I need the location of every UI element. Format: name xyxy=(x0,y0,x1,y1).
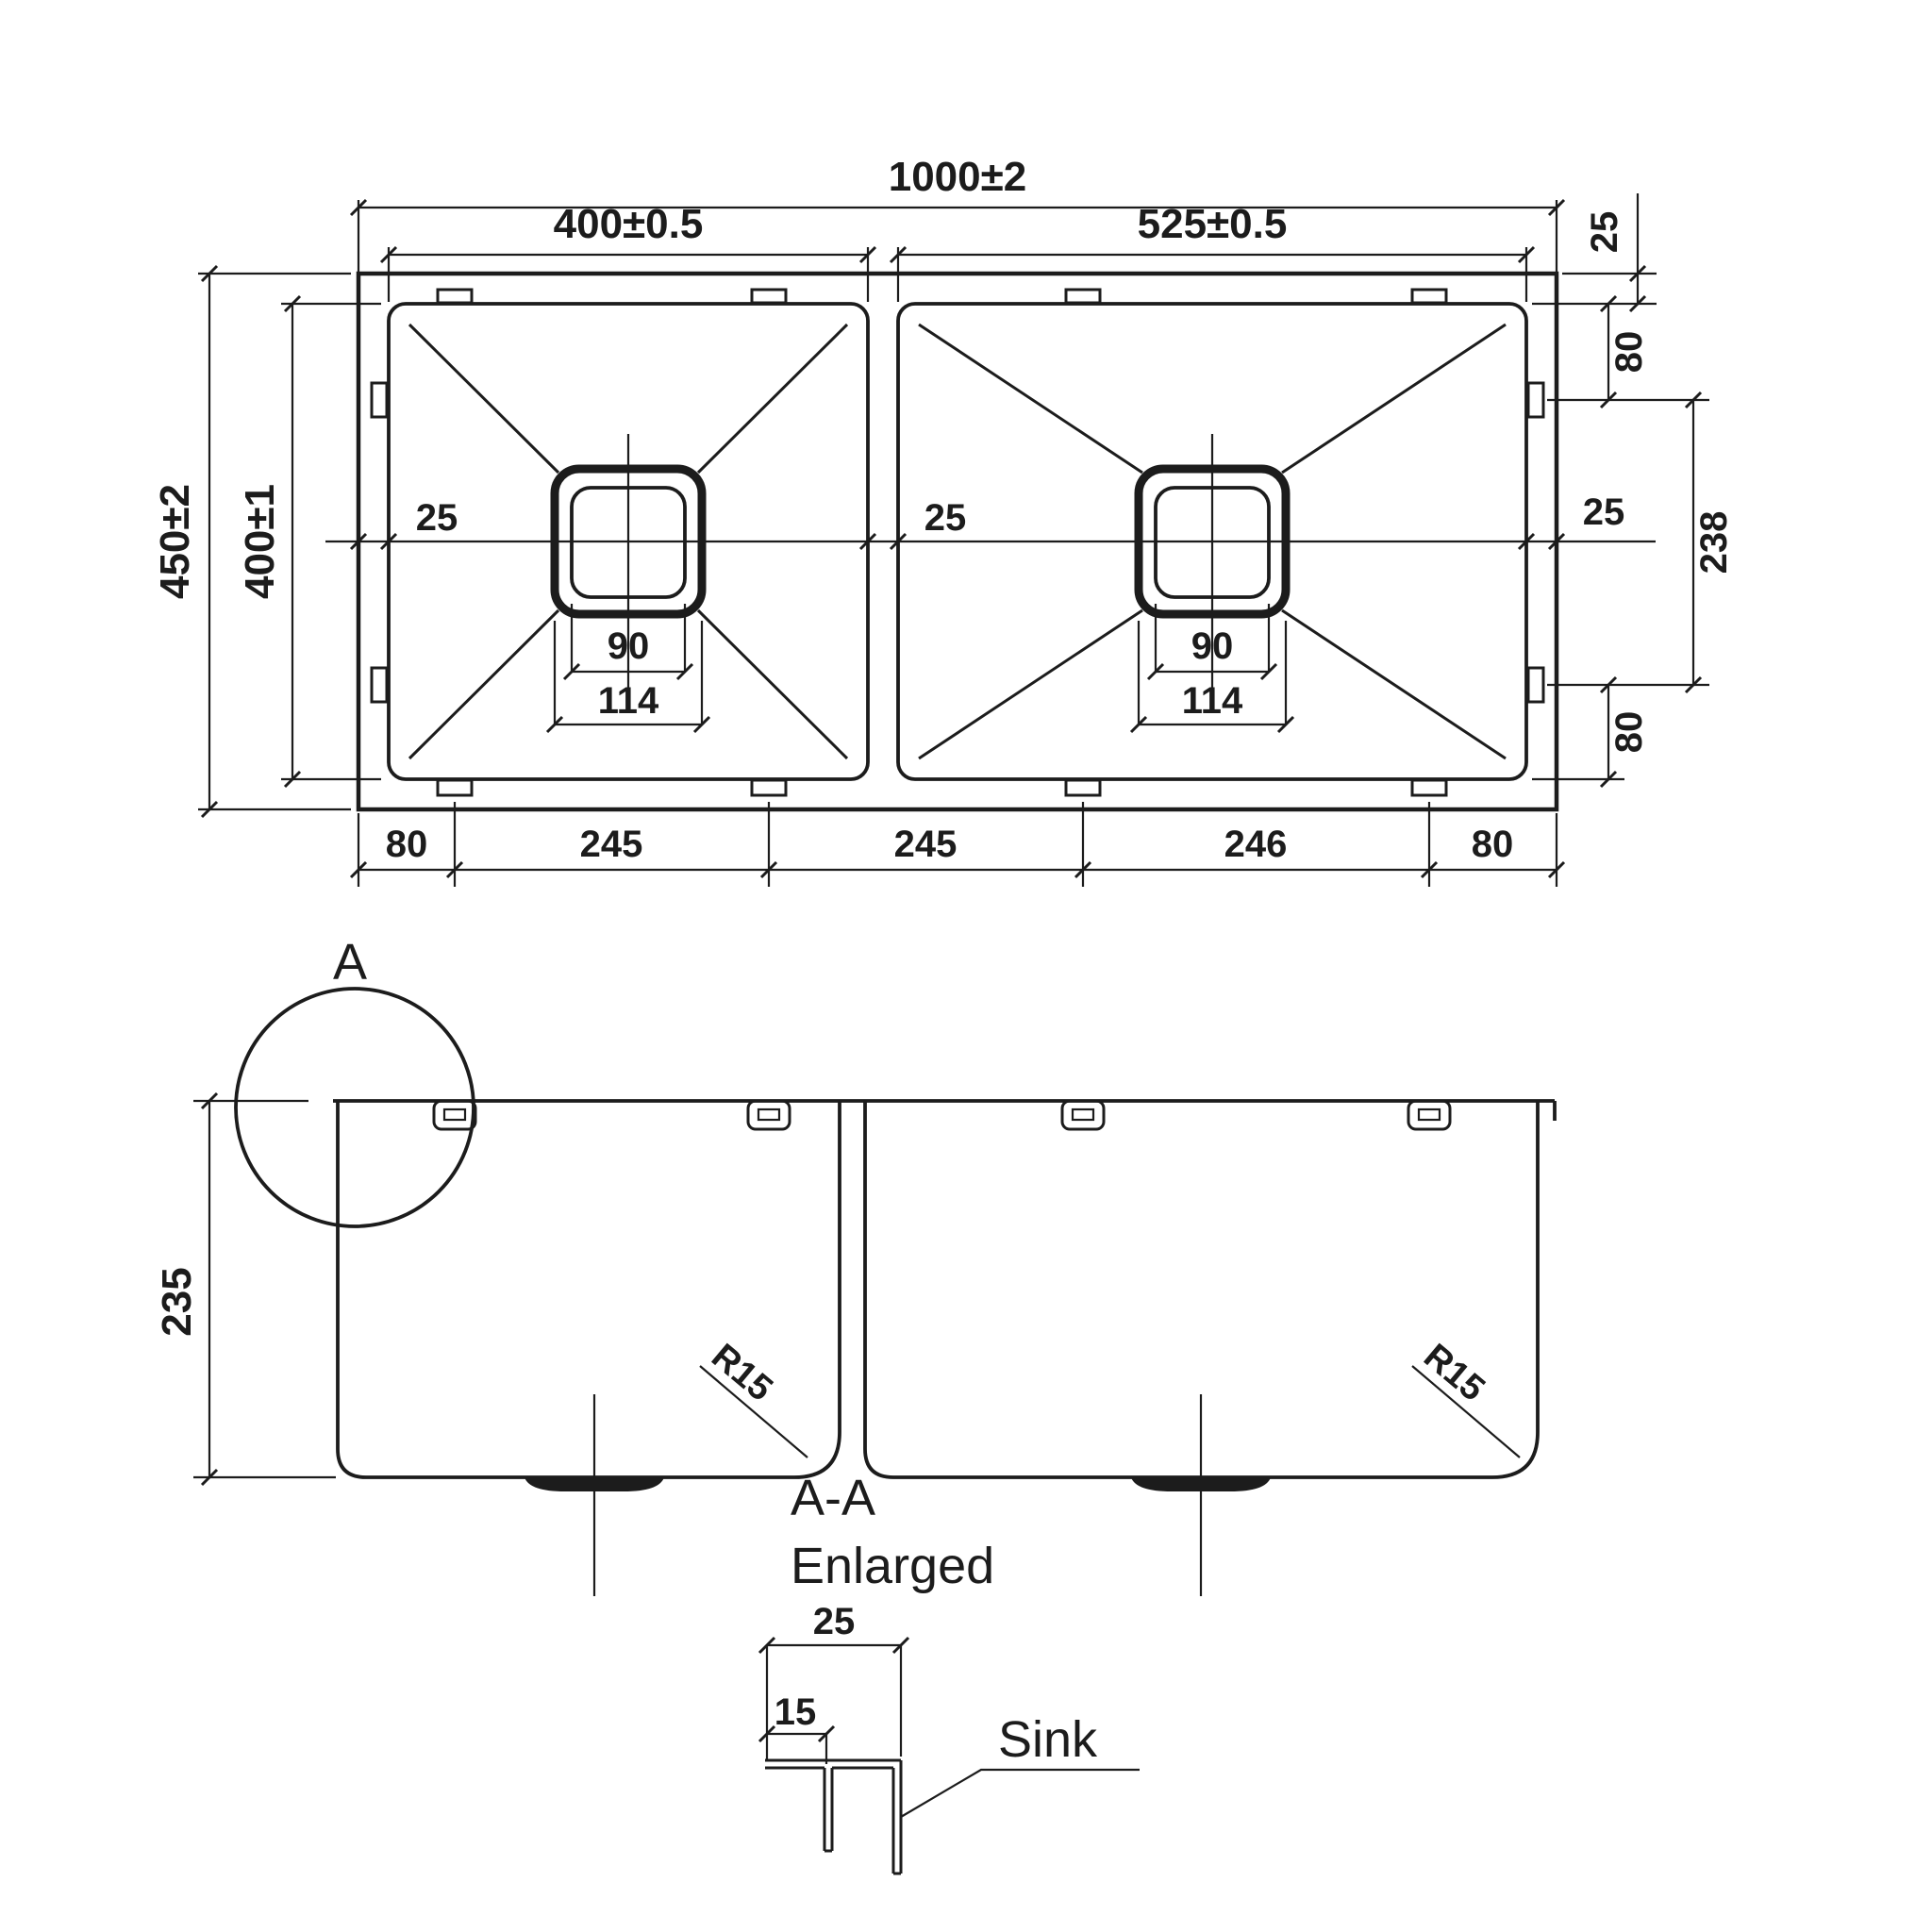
dim-bottom-s1: 80 xyxy=(386,824,428,865)
dim-overall-width-lines xyxy=(351,200,1564,272)
dim-right-top-clip-offset: 80 xyxy=(1608,331,1650,374)
dim-bottom-s5: 80 xyxy=(1472,824,1514,865)
dim-right-bottom-clip-offset: 80 xyxy=(1608,711,1650,754)
horizontal-centerline xyxy=(325,534,1656,549)
top-clips xyxy=(438,290,1446,303)
detail-subtitle: Enlarged xyxy=(791,1538,994,1594)
section-clips xyxy=(434,1101,1450,1129)
dim-bowl-depth: 400±1 xyxy=(237,484,283,599)
sink-callout-label: Sink xyxy=(998,1711,1098,1768)
dim-bottom-s4: 246 xyxy=(1224,824,1288,865)
dim-bottom-s3: 245 xyxy=(894,824,958,865)
technical-drawing-page: 25 25 25 1000±2 400±0.5 525±0.5 xyxy=(0,0,1932,1932)
dim-left-bowl-width: 400±0.5 xyxy=(554,201,704,247)
dim-right-bowl-width: 525±0.5 xyxy=(1138,201,1288,247)
sink-callout-leader xyxy=(901,1770,1140,1817)
rim-profile xyxy=(765,1760,901,1874)
top-view: 25 25 25 1000±2 400±0.5 525±0.5 xyxy=(152,154,1735,887)
dim-bottom-lines xyxy=(351,802,1564,887)
dim-rim-left: 25 xyxy=(416,497,458,539)
detail-title: A-A xyxy=(791,1470,875,1526)
dim-right-clip-span: 238 xyxy=(1693,511,1735,575)
dim-section-depth: 235 xyxy=(154,1267,200,1336)
dim-rim-right: 25 xyxy=(1583,491,1625,533)
detail-view: A-A Enlarged 25 15 S xyxy=(759,1470,1140,1874)
dim-overall-depth: 450±2 xyxy=(152,484,198,599)
dim-left-drain-inner: 90 xyxy=(608,625,650,667)
sink-technical-drawing: 25 25 25 1000±2 400±0.5 525±0.5 xyxy=(0,0,1932,1932)
dim-rim-divider: 25 xyxy=(924,497,967,539)
dim-detail-flange: 25 xyxy=(813,1601,856,1642)
dim-bottom-s2: 245 xyxy=(580,824,643,865)
dim-right-drain-outer: 114 xyxy=(1182,680,1243,722)
detail-marker-label: A xyxy=(333,934,367,991)
bottom-clips xyxy=(438,780,1446,795)
r15-left-label: R15 xyxy=(704,1337,779,1409)
dim-section-depth-lines xyxy=(193,1093,336,1485)
dim-detail-lip: 15 xyxy=(774,1691,817,1733)
detail-circle xyxy=(236,989,474,1226)
dim-overall-width: 1000±2 xyxy=(889,154,1027,200)
dim-right-top-rim: 25 xyxy=(1584,211,1625,254)
r15-right-label: R15 xyxy=(1416,1337,1491,1409)
dim-right-drain-inner: 90 xyxy=(1191,625,1234,667)
dim-left-drain-outer: 114 xyxy=(598,680,659,722)
